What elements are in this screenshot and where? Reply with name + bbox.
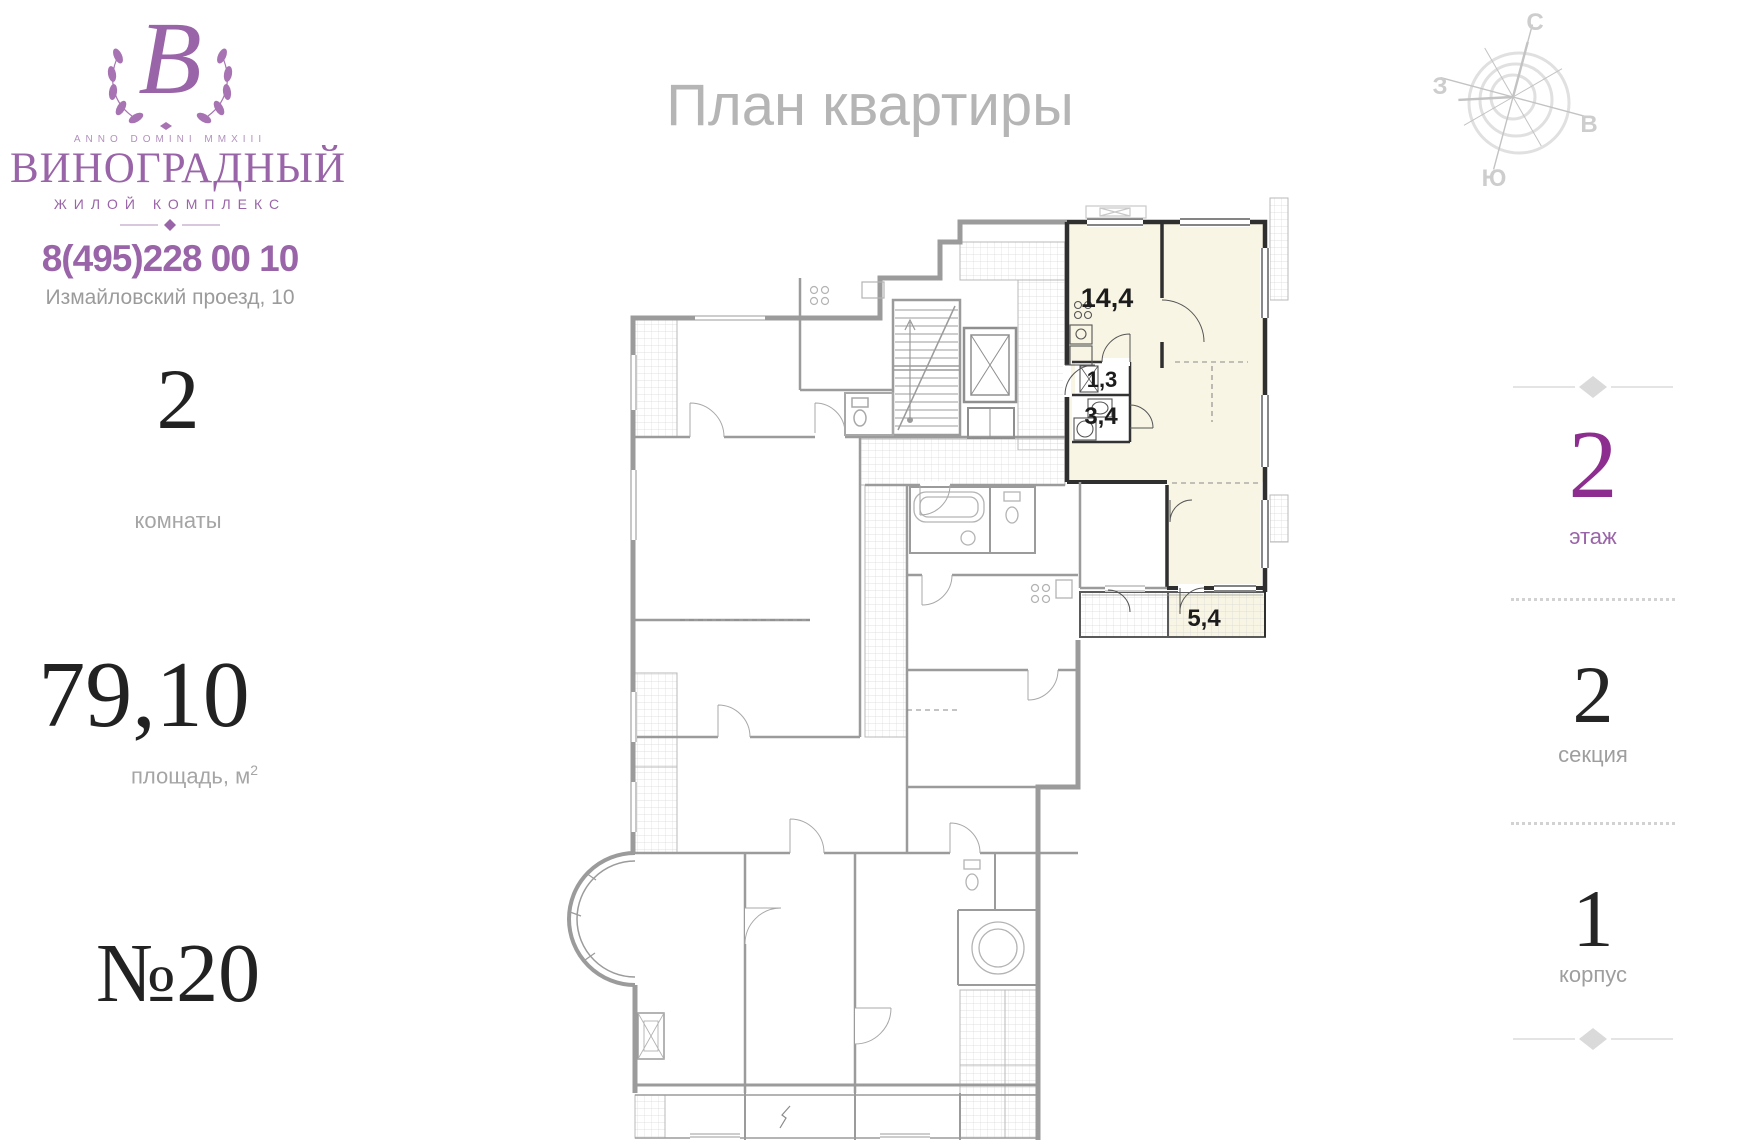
ornament-divider-top [1513, 376, 1673, 398]
building-label: корпус [1505, 962, 1681, 988]
rooms-label: комнаты [58, 508, 298, 534]
ornament-divider-bottom [1513, 1028, 1673, 1050]
brand-block: В ANNO DOMINI MMXIII ВИНОГРАДНЫЙ ЖИЛОЙ К… [10, 4, 330, 310]
floor-number: 2 [1505, 416, 1681, 514]
loggia-5-4 [1080, 592, 1265, 637]
area-value: 79,10 [26, 648, 262, 742]
compass-east-label: В [1580, 111, 1597, 138]
stairwell [893, 300, 960, 435]
elevator-shaft [964, 328, 1016, 438]
dotted-divider-1 [1511, 598, 1675, 601]
brand-name: ВИНОГРАДНЫЙ [10, 146, 330, 192]
hallway-area-label: 1,3 [1087, 367, 1118, 392]
area-label: площадь, м2 [26, 762, 258, 789]
brand-address: Измайловский проезд, 10 [10, 286, 330, 310]
brand-phone: 8(495)228 00 10 [10, 238, 330, 280]
floor-plan: 14,4 1,3 3,4 5,4 [490, 170, 1290, 1140]
compass-west-label: З [1432, 73, 1447, 100]
brand-tagline: ЖИЛОЙ КОМПЛЕКС [10, 196, 330, 212]
dotted-divider-2 [1511, 822, 1675, 825]
compass-rose: С В Ю З [1423, 2, 1605, 194]
rooms-count: 2 [58, 356, 298, 442]
compass-south-label: Ю [1482, 165, 1507, 192]
brand-anno-domini: ANNO DOMINI MMXIII [10, 134, 330, 145]
wc-common [845, 393, 893, 435]
section-number: 2 [1505, 654, 1681, 736]
laurel-wreath-icon [10, 4, 330, 132]
brand-ornament-divider [110, 218, 230, 232]
kitchen-neighbour-fixtures [811, 282, 885, 305]
building-number: 1 [1505, 878, 1681, 960]
loggia-area-label: 5,4 [1187, 605, 1221, 632]
section-label: секция [1505, 742, 1681, 768]
compass-star [1423, 5, 1605, 189]
apartment-number: №20 [58, 932, 298, 1016]
bathroom-area-label: 3,4 [1084, 403, 1118, 430]
brand-logo: В [10, 4, 330, 132]
floor-label: этаж [1505, 524, 1681, 550]
compass-north-label: С [1526, 9, 1543, 36]
location-sidebar: 2 этаж 2 секция 1 корпус [1505, 376, 1681, 1076]
kitchen-area-label: 14,4 [1081, 283, 1134, 313]
balcony-above [1086, 206, 1146, 218]
page-title: План квартиры [570, 72, 1170, 139]
